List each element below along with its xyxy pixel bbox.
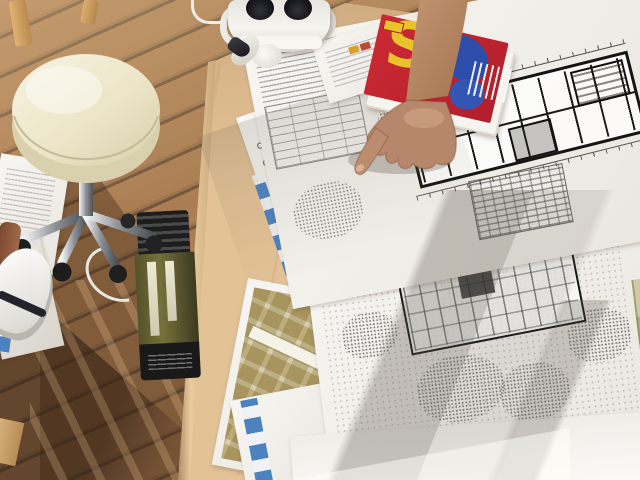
photo-scene: S xyxy=(0,0,640,480)
caster-wheel xyxy=(53,263,72,282)
caster-wheel xyxy=(146,236,163,253)
headset-lens xyxy=(246,0,274,20)
forearm xyxy=(406,0,468,102)
headset-lens xyxy=(284,0,312,20)
knuckle-highlight xyxy=(404,108,444,128)
stool-seat xyxy=(12,54,160,183)
radio-label xyxy=(148,352,193,370)
blue-tape xyxy=(240,398,273,480)
caster-wheel xyxy=(109,265,127,283)
pointing-hand xyxy=(328,0,488,200)
caster-wheel xyxy=(121,214,136,229)
